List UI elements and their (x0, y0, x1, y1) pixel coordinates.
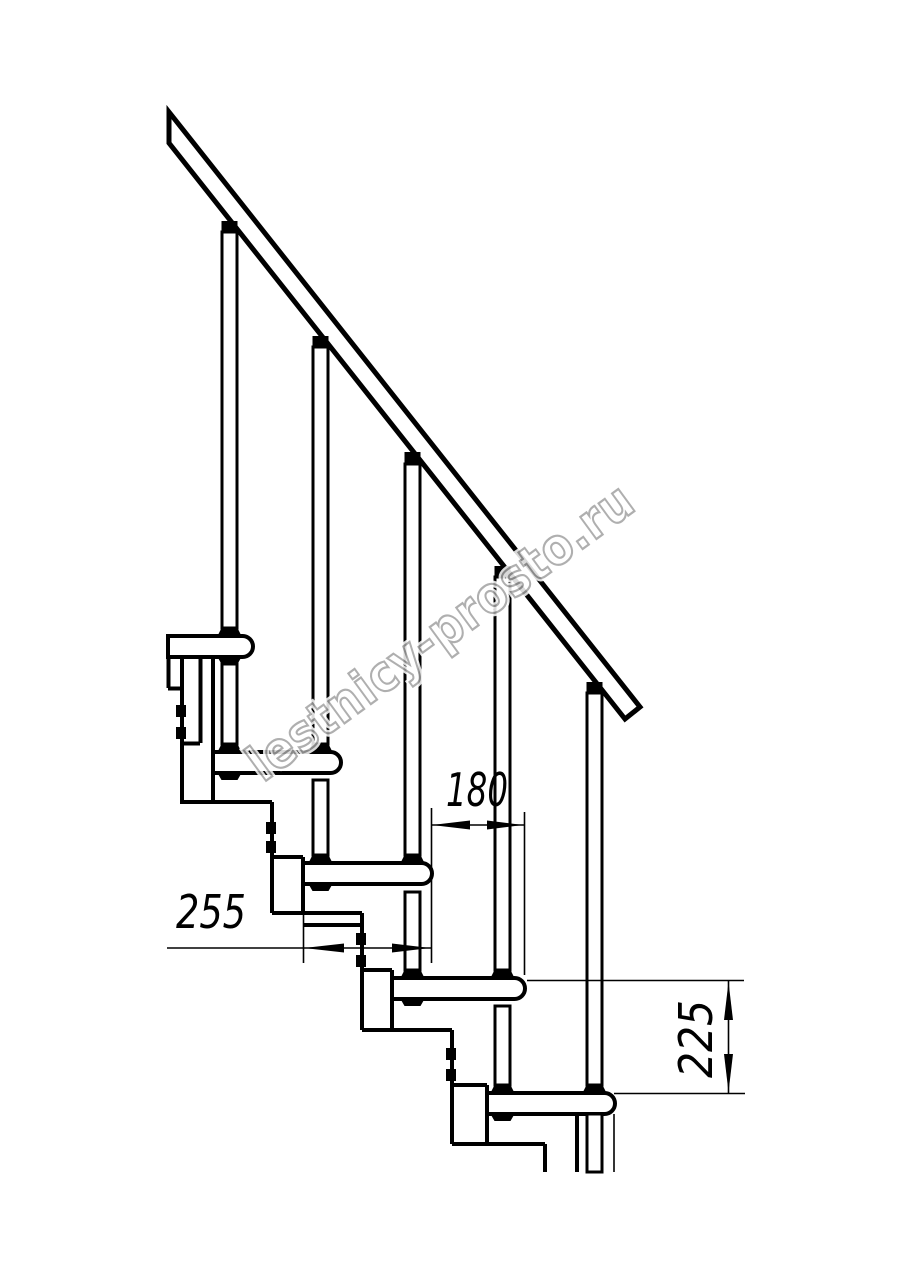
tread-5 (487, 1093, 615, 1114)
tread-3 (303, 863, 432, 884)
tread-mount (583, 1085, 607, 1093)
module-body (182, 657, 213, 802)
rod-upper (222, 232, 237, 628)
bolt (176, 727, 186, 739)
rail-mount (587, 682, 603, 693)
tread-mount (491, 970, 515, 978)
staircase-drawing-canvas: 255 180 225 lestnicy-prosto.ru lestnicy-… (0, 0, 914, 1280)
dimension-label: 255 (176, 885, 246, 939)
rod-lower (222, 664, 237, 744)
nut (309, 884, 333, 891)
arrowhead-left (304, 944, 344, 953)
baluster-4 (491, 566, 515, 1121)
dimension-label: 225 (669, 1000, 723, 1078)
bolt (356, 933, 366, 945)
rod-lower (495, 1006, 510, 1085)
tread-mount (401, 970, 425, 978)
rod-lower (313, 780, 328, 855)
watermark-text: lestnicy-prosto.ru (236, 471, 645, 792)
bolt (356, 955, 366, 967)
bolt (446, 1048, 456, 1060)
tread-1 (168, 636, 253, 657)
tread-4 (392, 978, 525, 999)
baluster-2 (309, 336, 333, 891)
arrowhead-down (724, 1054, 733, 1092)
staircase-diagram: 255 180 225 lestnicy-prosto.ru lestnicy-… (0, 0, 914, 1280)
bolt (266, 841, 276, 853)
rod-lower (587, 1114, 602, 1172)
dimension-annotations: 255 180 225 (167, 763, 745, 1172)
nut (218, 773, 242, 780)
rail-mount (313, 336, 329, 347)
tread-mount (218, 628, 242, 636)
baluster-3 (401, 452, 425, 1006)
tread-mount (491, 1085, 515, 1093)
dimension-255: 255 (167, 885, 431, 953)
rail-mount (222, 221, 238, 232)
tread-mount (309, 855, 333, 863)
arrowhead-left (432, 821, 470, 830)
arrowhead-up (724, 982, 733, 1020)
bolt (266, 822, 276, 834)
support-module-1 (168, 657, 272, 802)
rod-lower (405, 892, 420, 970)
rail-mount (405, 452, 421, 463)
nut (401, 999, 425, 1006)
tread-mount (401, 855, 425, 863)
dimension-225: 225 (669, 981, 733, 1093)
bolt (176, 705, 186, 717)
nut (491, 1114, 515, 1121)
bolt (446, 1069, 456, 1081)
rod-upper (587, 693, 602, 1085)
dimension-label: 180 (446, 763, 508, 817)
watermark: lestnicy-prosto.ru lestnicy-prosto.ru (236, 471, 645, 792)
support-module-5 (545, 1114, 577, 1172)
baluster-1 (218, 221, 242, 780)
